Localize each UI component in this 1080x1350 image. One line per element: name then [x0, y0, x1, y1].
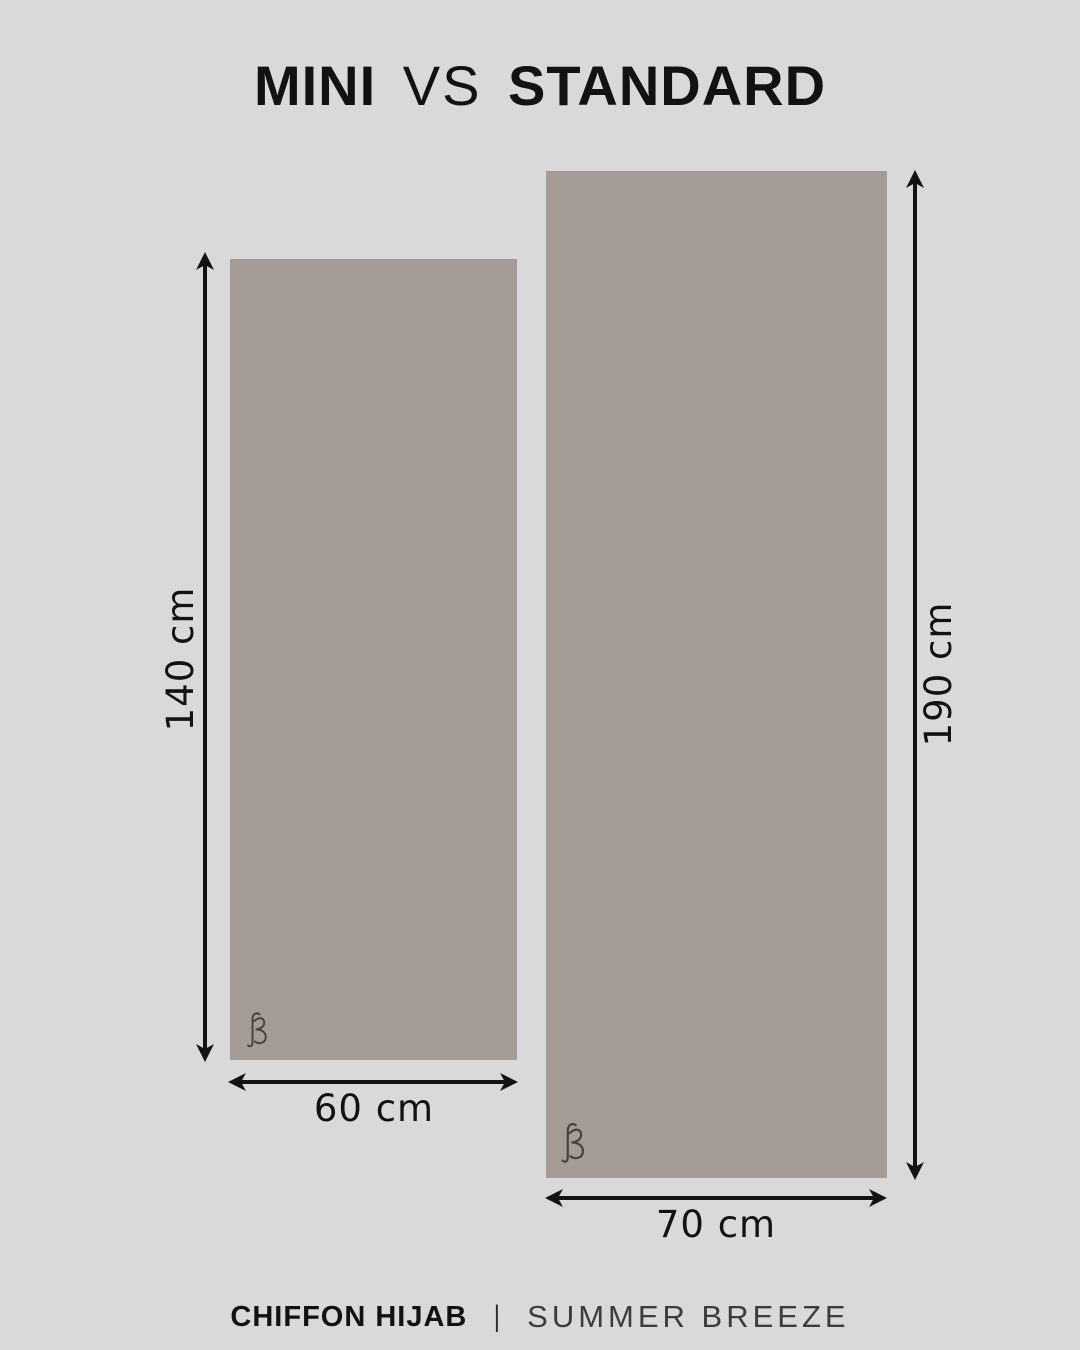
footer: CHIFFON HIJAB | SUMMER BREEZE	[0, 1299, 1080, 1335]
title-vs: VS	[403, 54, 482, 117]
page-title: MINI VS STANDARD	[0, 58, 1080, 114]
brand-monogram-icon	[558, 1120, 590, 1164]
standard-width-label: 70 cm	[606, 1202, 826, 1246]
brand-monogram-icon	[244, 1010, 272, 1048]
mini-height-label: 140 cm	[158, 549, 202, 769]
title-mini: MINI	[254, 54, 376, 117]
standard-fabric-swatch	[546, 171, 887, 1178]
standard-height-label: 190 cm	[916, 564, 960, 784]
size-comparison-infographic: MINI VS STANDARD	[0, 0, 1080, 1350]
mini-width-label: 60 cm	[264, 1086, 484, 1130]
mini-fabric-swatch	[230, 259, 517, 1060]
title-standard: STANDARD	[508, 54, 826, 117]
variant-name: SUMMER BREEZE	[527, 1299, 849, 1335]
footer-separator: |	[494, 1300, 500, 1334]
product-name: CHIFFON HIJAB	[230, 1301, 467, 1334]
